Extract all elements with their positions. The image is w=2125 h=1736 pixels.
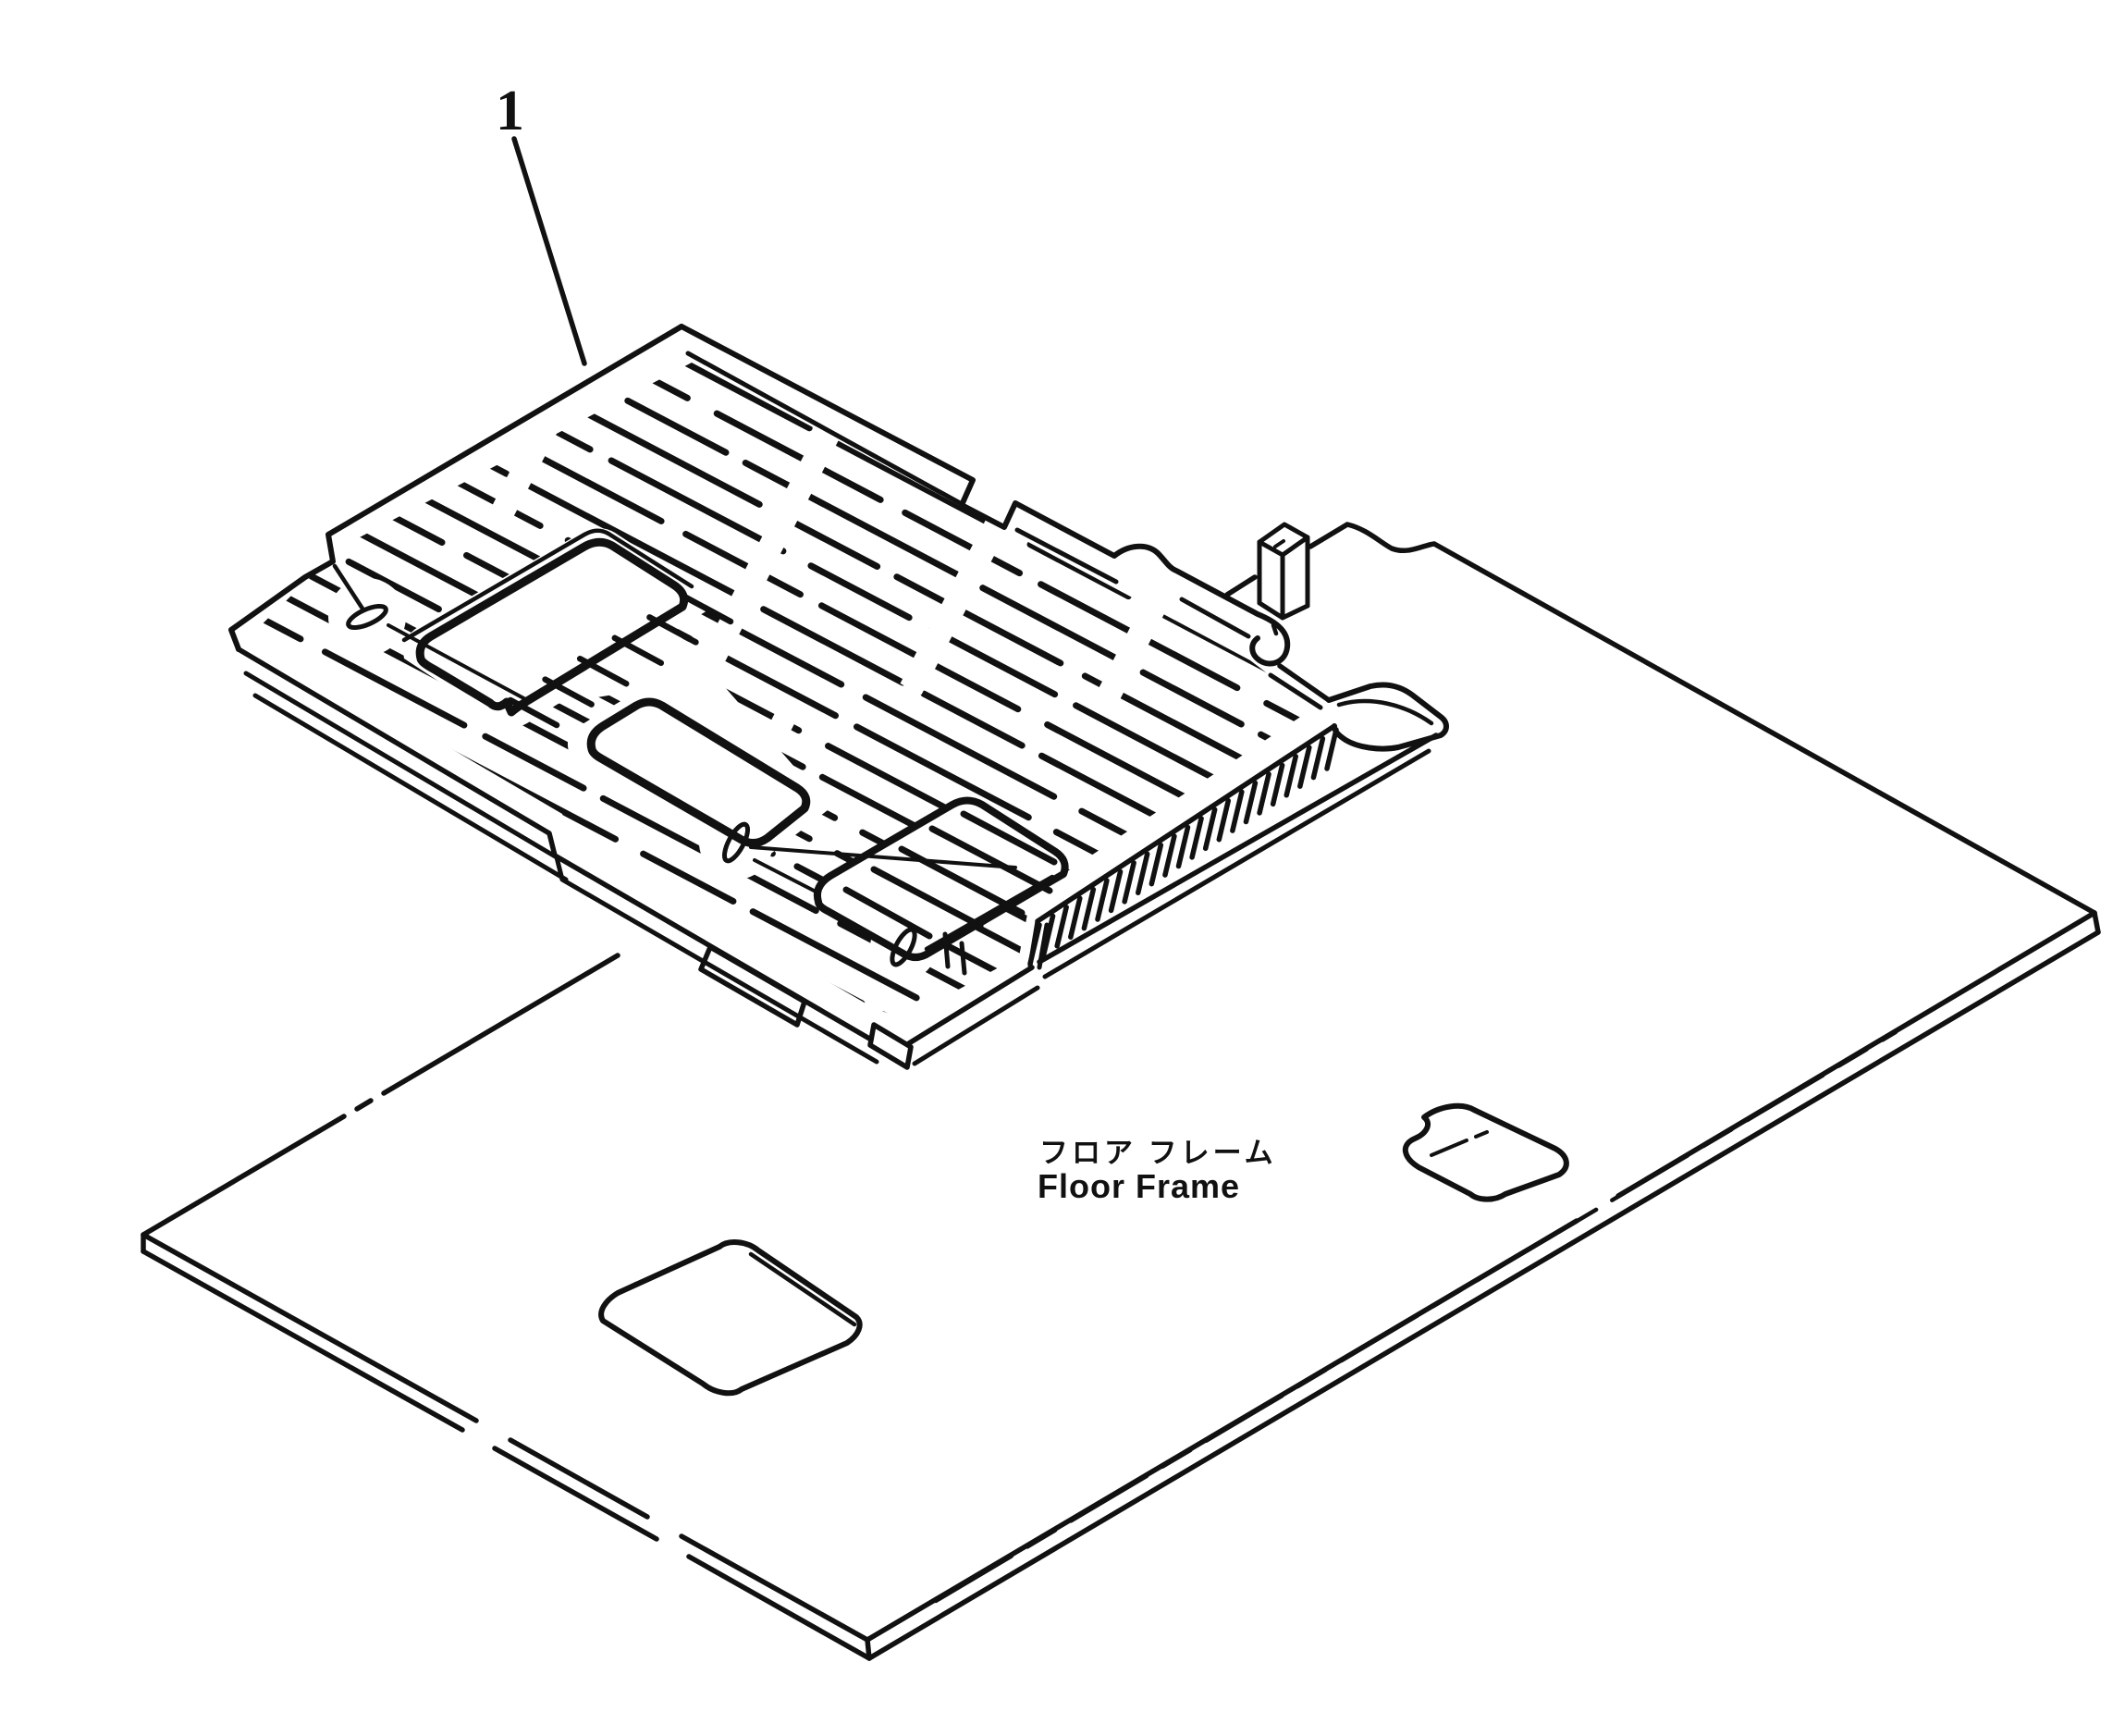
mat-edges — [231, 326, 1329, 1067]
frame-square-hole — [601, 1242, 860, 1393]
caption-english: Floor Frame — [1038, 1167, 1240, 1205]
caption-japanese: フロア フレーム — [1039, 1137, 1277, 1169]
frame-bend-line — [936, 1032, 1896, 1601]
part-leader-line — [514, 139, 584, 363]
mat-corner-wing — [1329, 684, 1446, 748]
parts-diagram-canvas: 1 フロア フレーム Floor Frame — [0, 0, 2125, 1736]
part-number-label: 1 — [496, 80, 524, 142]
frame-corner-cutout — [1406, 1106, 1566, 1200]
caption: フロア フレーム Floor Frame — [1038, 1137, 1277, 1205]
part-number-callout: 1 — [496, 80, 584, 363]
